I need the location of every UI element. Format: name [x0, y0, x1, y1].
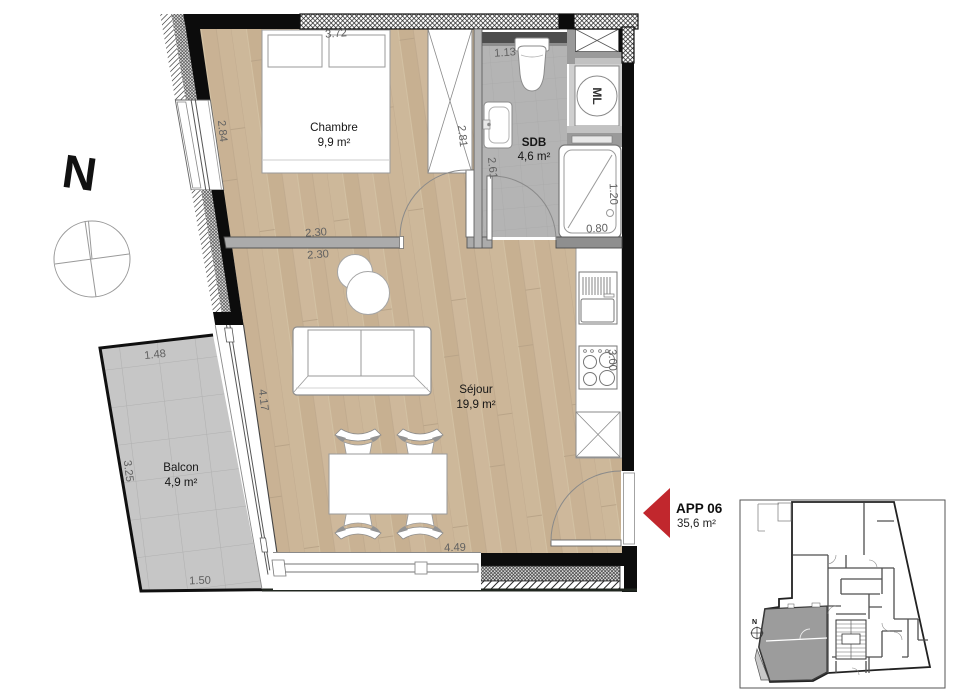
svg-text:4.49: 4.49	[444, 542, 466, 555]
svg-text:SDB: SDB	[522, 136, 546, 149]
svg-text:2.81: 2.81	[455, 125, 469, 148]
svg-text:APP 06: APP 06	[676, 501, 723, 516]
svg-text:3.00: 3.00	[606, 349, 619, 371]
svg-text:2.30: 2.30	[307, 248, 330, 261]
svg-text:2.61: 2.61	[485, 157, 499, 180]
svg-text:4,9 m²: 4,9 m²	[165, 476, 198, 489]
svg-text:3.72: 3.72	[325, 27, 348, 40]
svg-text:Chambre: Chambre	[310, 121, 358, 134]
svg-text:2.30: 2.30	[305, 226, 328, 239]
svg-text:ML: ML	[590, 87, 604, 104]
svg-text:Balcon: Balcon	[163, 461, 198, 474]
svg-text:4,6 m²: 4,6 m²	[518, 150, 551, 163]
svg-text:1.13: 1.13	[494, 46, 517, 59]
svg-text:1.48: 1.48	[144, 348, 167, 362]
svg-text:35,6 m²: 35,6 m²	[677, 518, 716, 530]
svg-text:1.20: 1.20	[607, 183, 620, 205]
svg-text:9,9 m²: 9,9 m²	[318, 136, 351, 149]
svg-text:Séjour: Séjour	[459, 383, 493, 396]
svg-text:19,9 m²: 19,9 m²	[456, 398, 495, 411]
svg-text:N: N	[752, 619, 757, 626]
svg-text:0.80: 0.80	[586, 222, 608, 235]
svg-text:2.84: 2.84	[215, 120, 229, 143]
svg-text:1.50: 1.50	[189, 575, 211, 588]
